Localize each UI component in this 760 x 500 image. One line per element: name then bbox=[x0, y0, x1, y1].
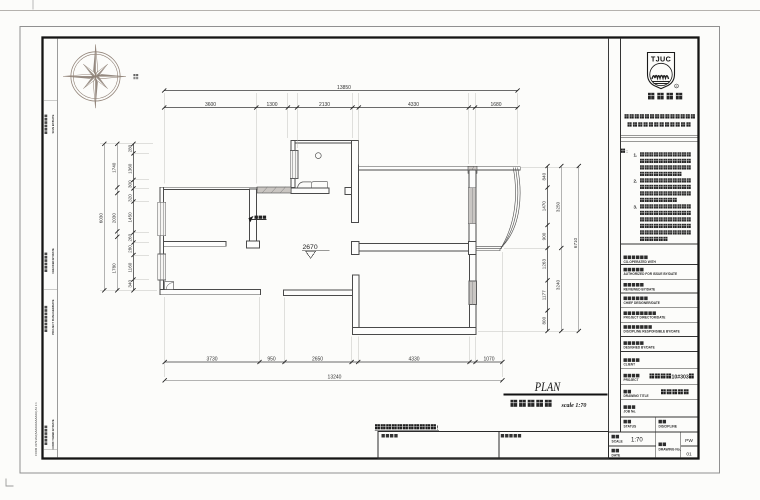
svg-text:1470: 1470 bbox=[542, 201, 547, 212]
svg-text:2650: 2650 bbox=[312, 356, 323, 362]
svg-text:PROJECT DIRECTOR/DATE: PROJECT DIRECTOR/DATE bbox=[624, 316, 666, 320]
svg-text:CO-OPERATED WITH: CO-OPERATED WITH bbox=[624, 260, 657, 264]
svg-text:3600: 3600 bbox=[205, 102, 216, 108]
svg-text:1300: 1300 bbox=[266, 102, 277, 108]
svg-text:1740: 1740 bbox=[111, 162, 116, 173]
svg-text:PROJECT MANAGER/DATE: PROJECT MANAGER/DATE bbox=[51, 299, 55, 334]
svg-text:CHECKED BY/DATE: CHECKED BY/DATE bbox=[51, 248, 55, 274]
svg-text:2030: 2030 bbox=[111, 213, 116, 224]
svg-text:10#303: 10#303 bbox=[672, 375, 689, 381]
svg-text:DISCIPLINE RESPONSIBLE BY/DATE: DISCIPLINE RESPONSIBLE BY/DATE bbox=[624, 330, 680, 334]
svg-text:TJUC: TJUC bbox=[651, 55, 671, 64]
svg-text:260: 260 bbox=[128, 233, 133, 241]
svg-text:900: 900 bbox=[542, 232, 547, 240]
svg-text:DESIGNED BY/DATE: DESIGNED BY/DATE bbox=[624, 346, 655, 350]
svg-text:REVIEWED BY/DATE: REVIEWED BY/DATE bbox=[624, 287, 656, 291]
svg-text:FORM 33791/02(AAAAAAAAAAAA) A: FORM 33791/02(AAAAAAAAAAAA) A3 1:1 bbox=[34, 402, 38, 456]
svg-text:01: 01 bbox=[686, 452, 692, 458]
svg-text:340: 340 bbox=[128, 280, 133, 288]
svg-text:STATUS: STATUS bbox=[624, 425, 637, 429]
svg-text:CHIEF DESIGNER/DATE: CHIEF DESIGNER/DATE bbox=[624, 301, 660, 305]
svg-text:PW: PW bbox=[685, 438, 693, 444]
svg-text:13850: 13850 bbox=[337, 85, 351, 91]
svg-text:DRAWING TITLE: DRAWING TITLE bbox=[624, 394, 649, 398]
svg-text:1070: 1070 bbox=[483, 356, 494, 362]
svg-text:2.: 2. bbox=[634, 179, 638, 184]
svg-text:SCALE: SCALE bbox=[612, 440, 624, 444]
svg-text:1450: 1450 bbox=[128, 212, 133, 223]
svg-text:1263: 1263 bbox=[542, 259, 547, 270]
svg-text:13240: 13240 bbox=[328, 375, 342, 381]
svg-text:DATE: DATE bbox=[612, 454, 622, 458]
svg-text:3730: 3730 bbox=[206, 356, 217, 362]
svg-text:280: 280 bbox=[128, 144, 133, 152]
svg-text:950: 950 bbox=[267, 356, 276, 362]
svg-text:AUTHORIZED FOR ISSUE BY/DATE: AUTHORIZED FOR ISSUE BY/DATE bbox=[624, 272, 678, 276]
svg-text:6710: 6710 bbox=[573, 237, 578, 248]
svg-text:1.: 1. bbox=[634, 153, 638, 158]
svg-text:840: 840 bbox=[542, 172, 547, 180]
svg-text:PLAN: PLAN bbox=[534, 380, 561, 394]
svg-text:PROJECT: PROJECT bbox=[624, 378, 639, 382]
svg-text:280: 280 bbox=[128, 245, 133, 253]
svg-text:1160: 1160 bbox=[128, 262, 133, 272]
svg-text:6030: 6030 bbox=[98, 213, 103, 224]
svg-text:4330: 4330 bbox=[408, 102, 419, 108]
svg-text:1360: 1360 bbox=[128, 163, 133, 174]
svg-text:DISCIPLINE: DISCIPLINE bbox=[659, 425, 678, 429]
svg-text:3250: 3250 bbox=[555, 201, 560, 212]
svg-text:R: R bbox=[676, 85, 678, 89]
svg-text:300: 300 bbox=[128, 180, 133, 188]
svg-text:JOB No.: JOB No. bbox=[624, 410, 637, 414]
svg-text:COMP-TARED BY/DATE: COMP-TARED BY/DATE bbox=[51, 419, 55, 450]
svg-text:1:70: 1:70 bbox=[631, 438, 643, 444]
svg-text:800: 800 bbox=[542, 316, 547, 324]
svg-text:scale 1:70: scale 1:70 bbox=[561, 403, 587, 409]
svg-text:DRAWING No.: DRAWING No. bbox=[659, 447, 681, 451]
svg-text:SIGN BY/DATE: SIGN BY/DATE bbox=[51, 114, 55, 133]
svg-text:1177: 1177 bbox=[542, 290, 547, 300]
svg-text:1680: 1680 bbox=[490, 102, 501, 108]
svg-text:3240: 3240 bbox=[555, 279, 560, 290]
svg-text:320: 320 bbox=[128, 194, 133, 202]
svg-text:4330: 4330 bbox=[408, 356, 419, 362]
svg-text:3.: 3. bbox=[634, 205, 638, 210]
svg-text:1780: 1780 bbox=[111, 263, 116, 274]
svg-text:2130: 2130 bbox=[319, 102, 330, 108]
svg-text:CLIENT: CLIENT bbox=[624, 363, 636, 367]
